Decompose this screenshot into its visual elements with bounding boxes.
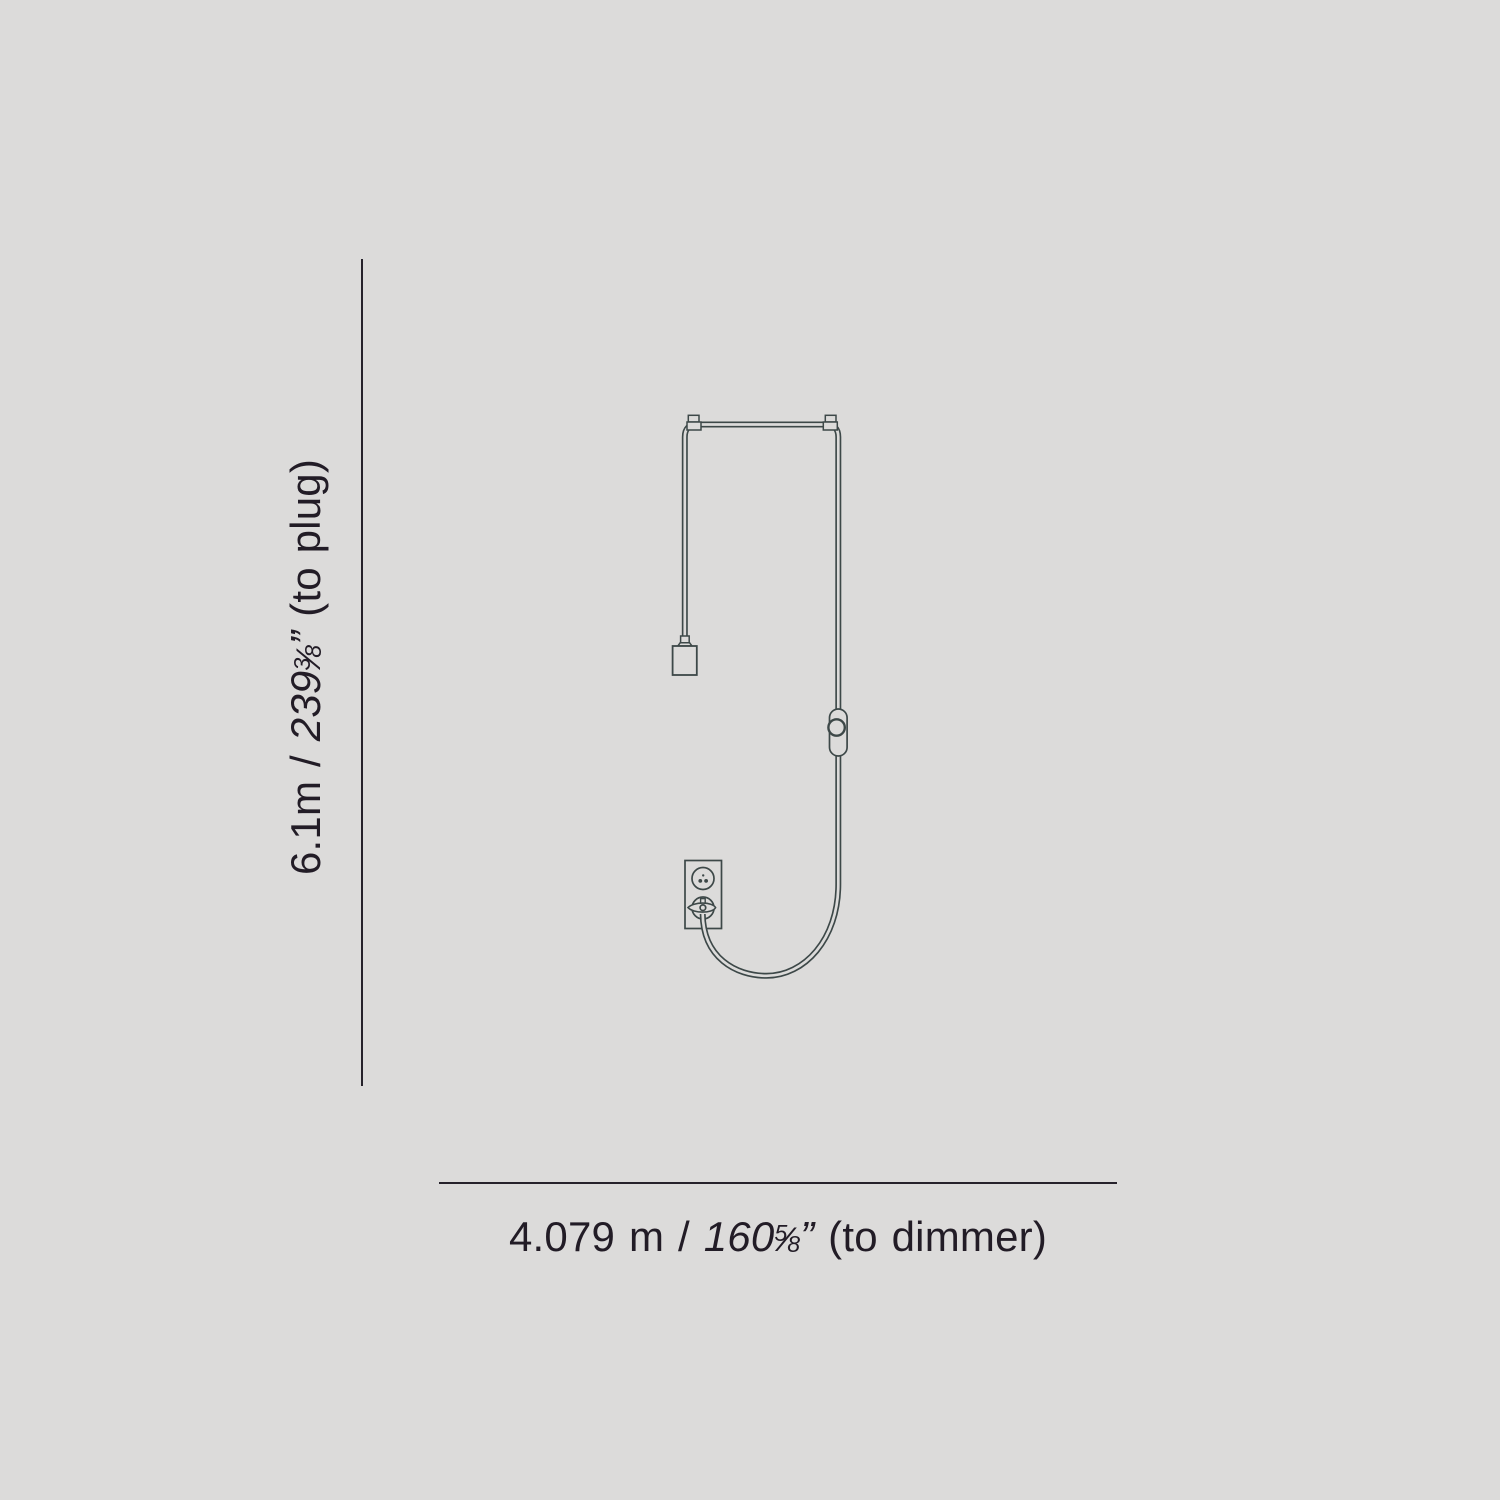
inline-dimmer [828, 709, 847, 756]
cable-clip-right [823, 415, 837, 430]
clip-tab [825, 415, 836, 422]
outlet-top-receptacle [692, 868, 714, 890]
clip-base [687, 422, 701, 430]
outlet-pin-dot [702, 874, 704, 876]
lamp-socket [673, 636, 697, 675]
cable-clip-left [687, 415, 701, 430]
dimmer-wheel [828, 719, 844, 735]
lamp-line-drawing [0, 0, 1500, 1500]
outlet-hole-right [704, 879, 708, 883]
clip-base [823, 422, 837, 430]
socket-body [673, 646, 697, 675]
outlet-hole-left [698, 879, 702, 883]
clip-tab [688, 415, 699, 422]
product-dimension-diagram: 6.1m / 2393⁄8” (to plug) 4.079 m / 1605⁄… [0, 0, 1500, 1500]
socket-neck [681, 636, 690, 643]
